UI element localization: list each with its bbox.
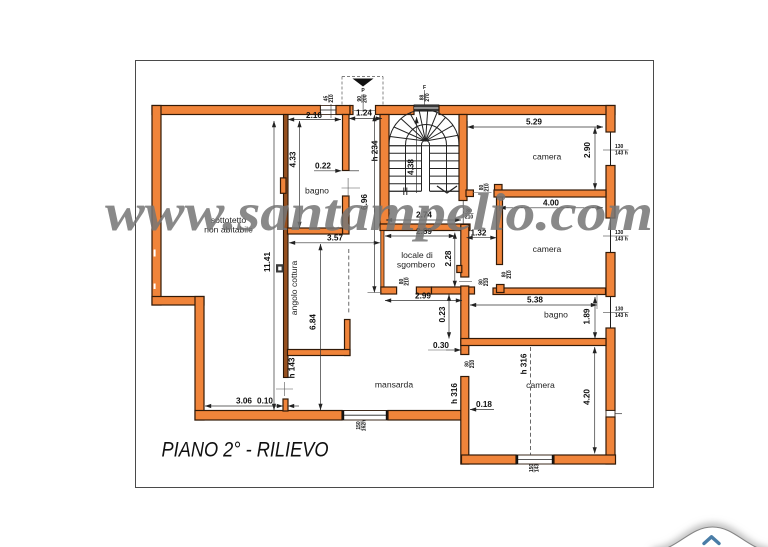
svg-text:4.33: 4.33 <box>289 151 298 167</box>
svg-text:camera: camera <box>533 152 562 162</box>
svg-text:2.99: 2.99 <box>415 292 431 301</box>
svg-text:143: 143 <box>535 464 541 473</box>
svg-text:h 316: h 316 <box>450 383 459 404</box>
svg-text:130: 130 <box>615 144 624 150</box>
svg-text:2.16: 2.16 <box>306 111 322 120</box>
svg-text:4.20: 4.20 <box>583 389 592 405</box>
svg-text:210: 210 <box>470 360 476 369</box>
svg-text:200: 200 <box>362 94 368 103</box>
svg-text:sgombero: sgombero <box>397 259 435 269</box>
svg-text:6.84: 6.84 <box>309 314 318 330</box>
svg-text:2.28: 2.28 <box>444 250 453 266</box>
svg-text:camera: camera <box>526 380 555 390</box>
svg-text:bagno: bagno <box>544 310 568 320</box>
svg-text:PIANO 2° - RILIEVO: PIANO 2° - RILIEVO <box>162 438 329 462</box>
svg-text:3.06: 3.06 <box>236 397 252 406</box>
svg-text:130: 130 <box>615 306 624 312</box>
svg-text:270: 270 <box>425 93 431 102</box>
svg-text:h 316: h 316 <box>520 353 529 374</box>
svg-text:www.santampelio.com: www.santampelio.com <box>105 184 653 242</box>
svg-text:5.29: 5.29 <box>526 118 542 127</box>
svg-text:143 h: 143 h <box>615 151 628 157</box>
svg-text:camera: camera <box>533 244 562 254</box>
svg-text:0.23: 0.23 <box>438 306 447 322</box>
svg-text:210: 210 <box>405 277 411 286</box>
svg-text:143 h: 143 h <box>615 313 628 319</box>
svg-text:5.38: 5.38 <box>527 296 543 305</box>
svg-text:h 143: h 143 <box>288 357 297 378</box>
svg-text:h 234: h 234 <box>371 140 380 161</box>
svg-text:210: 210 <box>507 270 513 279</box>
svg-text:F: F <box>423 85 426 91</box>
svg-text:1.89: 1.89 <box>583 308 592 324</box>
svg-text:2.90: 2.90 <box>583 142 592 158</box>
svg-text:mansarda: mansarda <box>375 380 413 390</box>
svg-text:0.10: 0.10 <box>257 397 273 406</box>
svg-text:4.38: 4.38 <box>407 159 416 175</box>
svg-text:0.18: 0.18 <box>476 400 492 409</box>
svg-text:1.24: 1.24 <box>356 109 372 118</box>
svg-text:11.41: 11.41 <box>263 252 272 272</box>
svg-text:210: 210 <box>329 94 335 103</box>
svg-text:angolo cottura: angolo cottura <box>289 261 299 316</box>
svg-text:0.30: 0.30 <box>433 341 449 350</box>
svg-text:0.22: 0.22 <box>315 162 331 171</box>
svg-text:162h: 162h <box>362 420 368 431</box>
svg-text:210: 210 <box>484 278 490 287</box>
